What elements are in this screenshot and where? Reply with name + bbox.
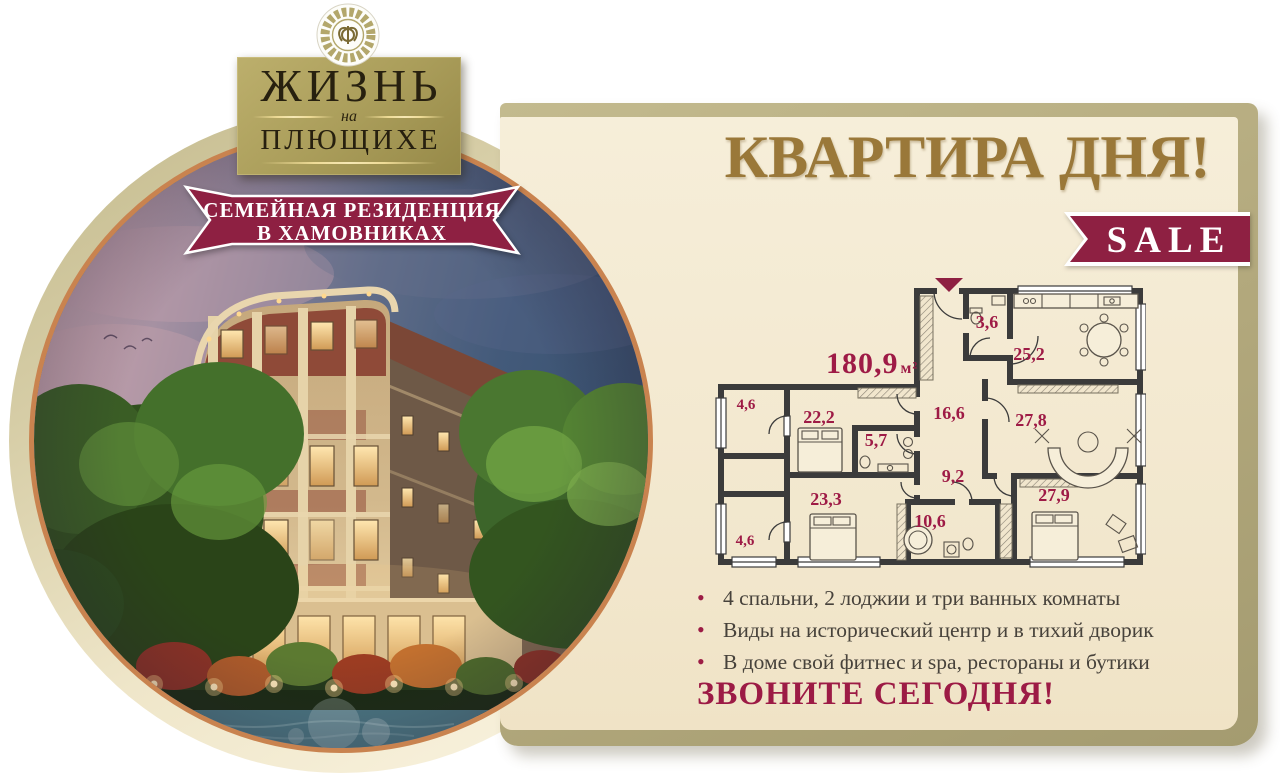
real-estate-ad[interactable]: ЖИЗНЬ на ПЛЮЩИХЕ СЕМЕЙНАЯ РЕЗИДЕНЦИЯ В Х…	[0, 0, 1280, 778]
room-area-label-bathroom-1: 5,7	[865, 430, 888, 450]
brand-ornament-icon	[314, 1, 382, 69]
room-area-label-hall: 16,6	[933, 403, 965, 423]
room-area-label-loggia-bottom: 4,6	[736, 533, 755, 549]
cta-text[interactable]: ЗВОНИТЕ СЕГОДНЯ!	[697, 676, 1055, 713]
floorplan: 180,9м² 3,6 25,2 4,6 22,2 16,6 27,8 5,7 …	[712, 276, 1146, 576]
room-area-label-bathroom-2: 10,6	[914, 511, 946, 531]
room-area-label-kitchen: 25,2	[1013, 344, 1045, 364]
entrance-arrow-icon	[935, 278, 963, 292]
room-area-label-wc: 3,6	[976, 312, 999, 332]
room-area-label-bedroom-2: 23,3	[810, 489, 842, 509]
tagline-line1: СЕМЕЙНАЯ РЕЗИДЕНЦИЯ	[203, 198, 500, 222]
bullet-icon: •	[697, 647, 711, 677]
sale-label: SALE	[1107, 220, 1232, 261]
total-area-label: 180,9м²	[826, 347, 918, 380]
gold-rule	[261, 162, 437, 164]
brand-name: ЖИЗНЬ	[237, 62, 461, 109]
feature-item: • Виды на исторический центр и в тихий д…	[697, 615, 1154, 645]
room-area-label-bedroom-3: 27,9	[1038, 485, 1070, 505]
room-area-label-living: 27,8	[1015, 410, 1047, 430]
brand-logo: ЖИЗНЬ на ПЛЮЩИХЕ	[237, 57, 461, 175]
brand-preposition: на	[341, 109, 357, 125]
feature-text: Виды на исторический центр и в тихий дво…	[723, 615, 1154, 645]
gold-rule	[364, 116, 445, 118]
bullet-icon: •	[697, 615, 711, 645]
feature-item: • 4 спальни, 2 лоджии и три ванных комна…	[697, 583, 1154, 613]
tagline-line2: В ХАМОВНИКАХ	[257, 221, 447, 245]
feature-text: В доме свой фитнес и spa, рестораны и бу…	[723, 647, 1150, 677]
brand-subname: ПЛЮЩИХЕ	[237, 125, 461, 155]
gold-rule	[253, 116, 334, 118]
feature-item: • В доме свой фитнес и spa, рестораны и …	[697, 647, 1154, 677]
room-area-label-corridor: 9,2	[942, 466, 965, 486]
feature-text: 4 спальни, 2 лоджии и три ванных комнаты	[723, 583, 1120, 613]
sale-badge[interactable]: SALE	[1050, 210, 1250, 268]
furniture	[798, 294, 1141, 560]
promo-title: КВАРТИРА ДНЯ!	[695, 126, 1240, 188]
feature-list: • 4 спальни, 2 лоджии и три ванных комна…	[697, 583, 1154, 679]
room-area-label-loggia-top: 4,6	[737, 397, 756, 413]
tagline-ribbon: СЕМЕЙНАЯ РЕЗИДЕНЦИЯ В ХАМОВНИКАХ	[182, 183, 522, 257]
room-area-label-bedroom-1: 22,2	[803, 407, 835, 427]
bullet-icon: •	[697, 583, 711, 613]
